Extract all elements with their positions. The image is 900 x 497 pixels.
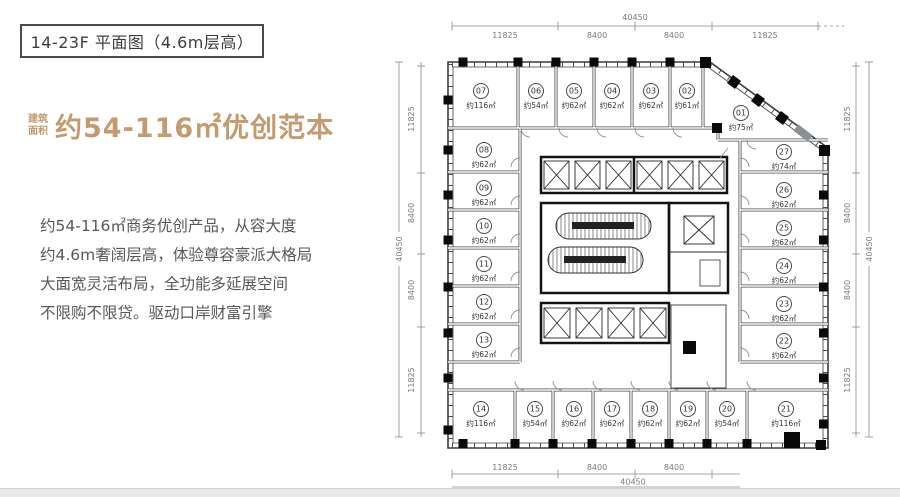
- dim-label: 8400: [843, 280, 852, 300]
- svg-text:27: 27: [779, 148, 789, 157]
- service-elevator: [669, 216, 728, 286]
- svg-text:约62㎡: 约62㎡: [772, 275, 797, 285]
- svg-text:约54㎡: 约54㎡: [523, 418, 548, 428]
- svg-text:25: 25: [779, 224, 789, 233]
- svg-text:约62㎡: 约62㎡: [562, 418, 587, 428]
- svg-text:约74㎡: 约74㎡: [772, 161, 797, 171]
- dim-label: 8400: [407, 203, 416, 223]
- svg-text:03: 03: [646, 87, 656, 96]
- svg-text:约116㎡: 约116㎡: [466, 100, 496, 110]
- dim-label: 8400: [587, 463, 607, 472]
- svg-text:10: 10: [479, 222, 489, 231]
- stairs: [548, 213, 651, 273]
- svg-text:17: 17: [607, 405, 617, 414]
- svg-text:约61㎡: 约61㎡: [675, 100, 700, 110]
- unit-22: 22约62㎡: [772, 334, 797, 361]
- unit-01: 01约75㎡: [729, 106, 754, 133]
- svg-text:15: 15: [530, 405, 540, 414]
- dim-label: 8400: [664, 463, 684, 472]
- unit-03: 03约62㎡: [639, 84, 664, 111]
- svg-text:07: 07: [476, 87, 486, 96]
- svg-text:23: 23: [779, 300, 789, 309]
- svg-text:18: 18: [645, 405, 655, 414]
- svg-text:13: 13: [479, 336, 489, 345]
- core-side-room: [671, 305, 726, 388]
- svg-text:约62㎡: 约62㎡: [600, 418, 625, 428]
- dim-label: 40450: [620, 478, 645, 487]
- svg-text:约62㎡: 约62㎡: [472, 349, 497, 359]
- unit-20: 20约54㎡: [715, 402, 740, 429]
- unit-08: 08约62㎡: [472, 143, 497, 170]
- unit-17: 17约62㎡: [600, 402, 625, 429]
- svg-text:约62㎡: 约62㎡: [772, 199, 797, 209]
- dim-label: 40450: [865, 236, 874, 261]
- svg-text:约62㎡: 约62㎡: [600, 100, 625, 110]
- dim-label: 11825: [407, 106, 416, 131]
- elevator-bank-bottom: [544, 308, 666, 338]
- unit-09: 09约62㎡: [472, 181, 497, 208]
- svg-text:11: 11: [479, 260, 489, 269]
- svg-text:16: 16: [569, 405, 579, 414]
- svg-text:约62㎡: 约62㎡: [676, 418, 701, 428]
- dim-label: 8400: [407, 280, 416, 300]
- svg-text:约62㎡: 约62㎡: [472, 235, 497, 245]
- dim-label: 11825: [843, 367, 852, 392]
- unit-10: 10约62㎡: [472, 219, 497, 246]
- svg-text:21: 21: [781, 405, 791, 414]
- dim-label: 11825: [492, 31, 517, 40]
- svg-text:约62㎡: 约62㎡: [472, 311, 497, 321]
- floor-plan: 07约116㎡ 06约54㎡ 05约62㎡ 04约62㎡ 03约62㎡ 02约6…: [0, 0, 900, 497]
- dim-label: 8400: [843, 203, 852, 223]
- svg-text:约62㎡: 约62㎡: [638, 418, 663, 428]
- svg-text:12: 12: [479, 298, 489, 307]
- dim-label: 11825: [843, 106, 852, 131]
- dim-label: 11825: [407, 367, 416, 392]
- unit-11: 11约62㎡: [472, 257, 497, 284]
- unit-25: 25约62㎡: [772, 221, 797, 248]
- svg-text:约62㎡: 约62㎡: [772, 313, 797, 323]
- svg-text:约116㎡: 约116㎡: [466, 418, 496, 428]
- svg-text:约116㎡: 约116㎡: [771, 418, 801, 428]
- svg-text:约62㎡: 约62㎡: [772, 237, 797, 247]
- svg-text:02: 02: [682, 87, 692, 96]
- svg-text:08: 08: [479, 146, 489, 155]
- svg-text:19: 19: [683, 405, 693, 414]
- unit-14: 14约116㎡: [466, 402, 496, 429]
- dim-label: 40450: [622, 13, 647, 22]
- unit-06: 06约54㎡: [524, 84, 549, 111]
- svg-text:01: 01: [736, 109, 746, 118]
- bottom-gray-bar: [0, 488, 900, 497]
- dim-label: 40450: [395, 236, 404, 261]
- svg-text:约62㎡: 约62㎡: [472, 159, 497, 169]
- svg-text:20: 20: [722, 405, 732, 414]
- svg-text:约54㎡: 约54㎡: [524, 100, 549, 110]
- unit-07: 07约116㎡: [466, 84, 496, 111]
- svg-text:06: 06: [531, 87, 541, 96]
- unit-26: 26约62㎡: [772, 183, 797, 210]
- svg-text:约75㎡: 约75㎡: [729, 122, 754, 132]
- unit-02: 02约61㎡: [675, 84, 700, 111]
- svg-text:04: 04: [607, 87, 617, 96]
- unit-23: 23约62㎡: [772, 297, 797, 324]
- unit-24: 24约62㎡: [772, 259, 797, 286]
- svg-text:约62㎡: 约62㎡: [639, 100, 664, 110]
- svg-text:24: 24: [779, 262, 789, 271]
- unit-18: 18约62㎡: [638, 402, 663, 429]
- svg-text:约62㎡: 约62㎡: [562, 100, 587, 110]
- svg-text:09: 09: [479, 184, 489, 193]
- svg-text:22: 22: [779, 337, 789, 346]
- unit-04: 04约62㎡: [600, 84, 625, 111]
- svg-text:05: 05: [569, 87, 579, 96]
- dim-label: 11825: [752, 31, 777, 40]
- svg-text:约54㎡: 约54㎡: [715, 418, 740, 428]
- unit-19: 19约62㎡: [676, 402, 701, 429]
- svg-text:14: 14: [476, 405, 486, 414]
- unit-21: 21约116㎡: [771, 402, 801, 429]
- svg-text:约62㎡: 约62㎡: [772, 350, 797, 360]
- unit-05: 05约62㎡: [562, 84, 587, 111]
- dim-label: 8400: [664, 31, 684, 40]
- unit-13: 13约62㎡: [472, 333, 497, 360]
- svg-text:约62㎡: 约62㎡: [472, 273, 497, 283]
- unit-27: 27约74㎡: [772, 145, 797, 172]
- dim-label: 8400: [587, 31, 607, 40]
- dim-label: 11825: [492, 463, 517, 472]
- svg-text:约62㎡: 约62㎡: [472, 197, 497, 207]
- svg-text:26: 26: [779, 186, 789, 195]
- unit-15: 15约54㎡: [523, 402, 548, 429]
- unit-16: 16约62㎡: [562, 402, 587, 429]
- unit-12: 12约62㎡: [472, 295, 497, 322]
